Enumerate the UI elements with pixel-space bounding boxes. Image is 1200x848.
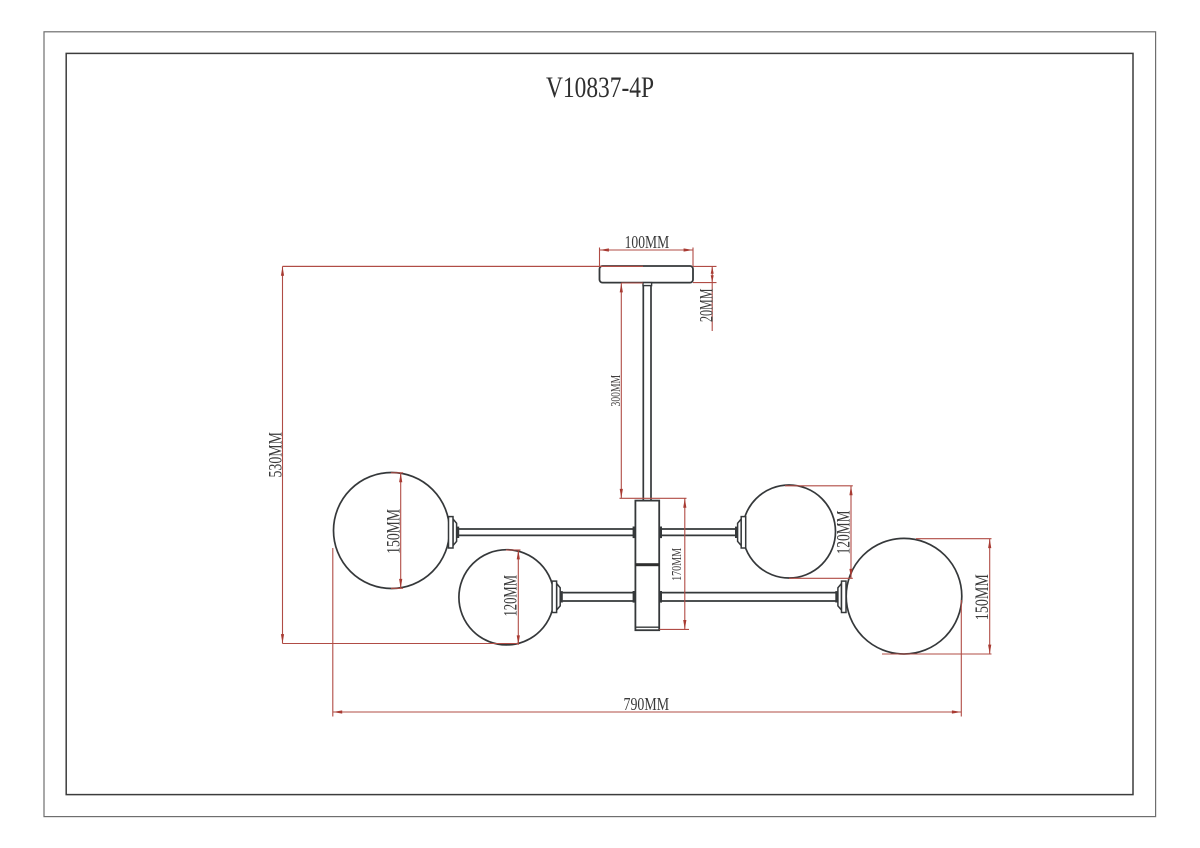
svg-text:530MM: 530MM [266,432,287,478]
svg-text:100MM: 100MM [625,232,670,252]
svg-text:120MM: 120MM [834,510,855,554]
svg-text:150MM: 150MM [972,574,993,620]
svg-text:790MM: 790MM [624,694,670,714]
svg-text:20MM: 20MM [696,288,717,322]
svg-text:V10837-4P: V10837-4P [546,71,654,104]
svg-text:150MM: 150MM [384,509,405,554]
svg-text:300MM: 300MM [608,375,623,407]
svg-text:120MM: 120MM [501,575,522,617]
svg-text:170MM: 170MM [670,548,685,581]
